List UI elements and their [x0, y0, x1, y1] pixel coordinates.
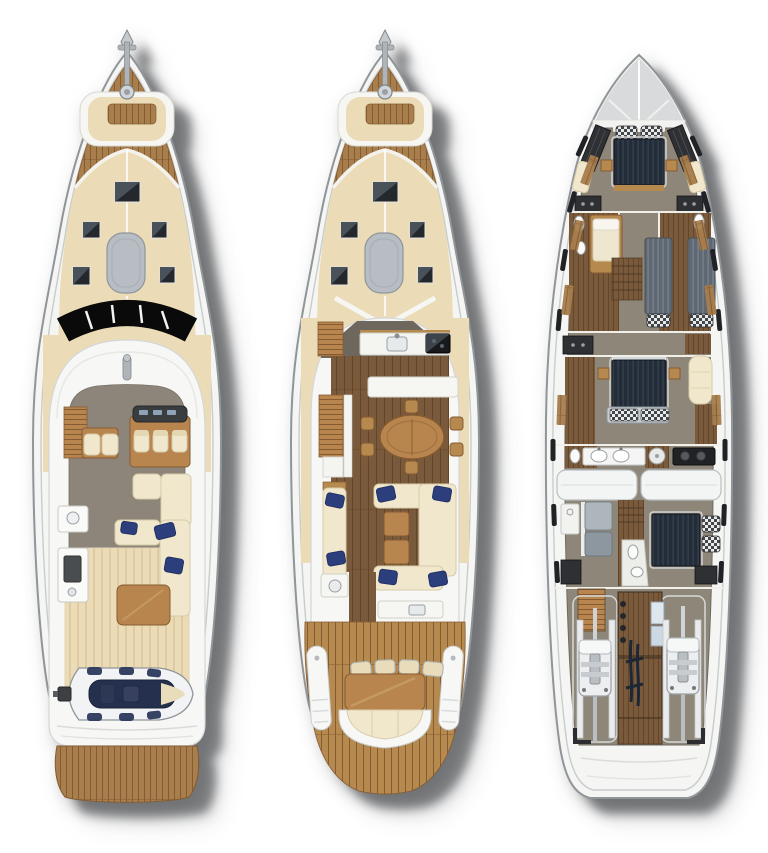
lobby-floor	[685, 334, 711, 354]
sink	[631, 567, 643, 577]
toilet	[628, 545, 638, 559]
master-bed	[612, 360, 666, 408]
antenna-mast	[123, 355, 131, 381]
sink	[591, 450, 607, 462]
master-foot-bench	[607, 407, 669, 423]
guest-pillow	[647, 314, 670, 327]
swim-platform	[55, 746, 198, 802]
galley-sink	[387, 337, 407, 351]
nightstand	[666, 160, 677, 171]
yacht-deck-plans	[0, 0, 768, 853]
main-deck-plan	[291, 30, 479, 794]
crew-bunks	[581, 502, 612, 556]
grill	[64, 556, 81, 582]
midship-stairs	[612, 258, 642, 300]
master-floor	[565, 356, 595, 444]
galley	[360, 330, 450, 355]
guest-pillow	[690, 314, 713, 327]
hatch-panel	[651, 602, 664, 624]
cooktop	[426, 334, 450, 353]
tender-on-deck	[53, 667, 193, 721]
bar-fitting	[68, 588, 76, 596]
ottoman	[384, 540, 409, 564]
crew-wardrobe	[561, 560, 581, 584]
stairs-up	[318, 322, 343, 356]
wardrobe	[563, 336, 593, 354]
flybridge-deck-plan	[33, 30, 221, 802]
nightstand	[669, 368, 680, 379]
sideboard	[368, 377, 458, 397]
aft-sink	[409, 605, 425, 615]
helm-seats	[134, 430, 187, 452]
bar-sink	[67, 512, 79, 524]
hatch-panel	[651, 626, 664, 646]
tender-console	[123, 686, 139, 702]
crew-galley-stove	[673, 448, 715, 465]
yacht-deck-plans-canvas	[0, 0, 768, 853]
flybridge-sofa	[161, 474, 191, 526]
nightstand	[601, 160, 612, 171]
bed-foot-board	[614, 185, 664, 191]
crew-wardrobe	[695, 566, 717, 584]
sink	[613, 450, 629, 462]
faucet	[395, 334, 400, 339]
crew-bathroom	[622, 540, 648, 586]
tender-seat	[101, 685, 114, 703]
nightstand	[598, 368, 609, 379]
ottoman	[384, 512, 409, 536]
vip-bed	[614, 139, 664, 185]
master-sofa	[689, 356, 712, 404]
flybridge-sofa	[133, 474, 161, 499]
toilet	[570, 449, 580, 463]
helm-instruments	[139, 410, 176, 415]
stairs-down	[319, 395, 352, 477]
icemaker	[329, 580, 341, 592]
lower-deck-plan	[546, 55, 732, 798]
walkthrough-floor	[349, 572, 376, 624]
master-bathroom	[565, 446, 715, 468]
